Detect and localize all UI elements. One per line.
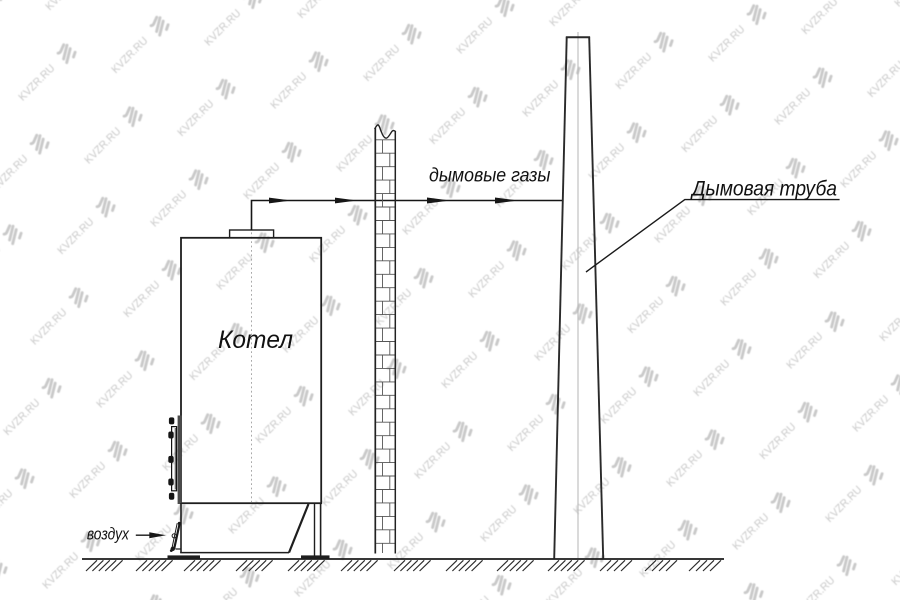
svg-text:KVZR.RU: KVZR.RU	[55, 216, 96, 257]
svg-text:KVZR.RU: KVZR.RU	[199, 586, 240, 600]
svg-text:KVZR.RU: KVZR.RU	[640, 0, 681, 1]
svg-text:KVZR.RU: KVZR.RU	[427, 106, 468, 147]
svg-text:KVZR.RU: KVZR.RU	[865, 59, 900, 100]
svg-text:KVZR.RU: KVZR.RU	[319, 468, 360, 509]
svg-text:KVZR.RU: KVZR.RU	[889, 547, 900, 588]
svg-text:KVZR.RU: KVZR.RU	[544, 566, 585, 600]
svg-text:KVZR.RU: KVZR.RU	[757, 421, 798, 462]
svg-text:KVZR.RU: KVZR.RU	[691, 358, 732, 399]
svg-text:KVZR.RU: KVZR.RU	[268, 70, 309, 111]
svg-text:KVZR.RU: KVZR.RU	[613, 51, 654, 92]
svg-text:KVZR.RU: KVZR.RU	[0, 243, 3, 284]
svg-text:KVZR.RU: KVZR.RU	[532, 322, 573, 363]
svg-text:KVZR.RU: KVZR.RU	[43, 0, 84, 13]
svg-text:KVZR.RU: KVZR.RU	[94, 369, 135, 410]
svg-text:KVZR.RU: KVZR.RU	[679, 114, 720, 155]
svg-text:KVZR.RU: KVZR.RU	[547, 0, 588, 29]
svg-text:KVZR.RU: KVZR.RU	[1, 397, 42, 438]
svg-text:KVZR.RU: KVZR.RU	[361, 43, 402, 84]
svg-text:дымовые газы: дымовые газы	[429, 164, 551, 186]
svg-text:KVZR.RU: KVZR.RU	[0, 487, 15, 528]
svg-text:KVZR.RU: KVZR.RU	[877, 303, 900, 344]
svg-text:KVZR.RU: KVZR.RU	[82, 125, 123, 166]
svg-text:KVZR.RU: KVZR.RU	[520, 78, 561, 119]
svg-text:KVZR.RU: KVZR.RU	[226, 495, 267, 536]
svg-text:KVZR.RU: KVZR.RU	[439, 350, 480, 391]
svg-text:KVZR.RU: KVZR.RU	[307, 224, 348, 265]
svg-text:KVZR.RU: KVZR.RU	[16, 62, 57, 103]
svg-text:KVZR.RU: KVZR.RU	[0, 153, 30, 194]
svg-text:KVZR.RU: KVZR.RU	[292, 558, 333, 599]
svg-text:KVZR.RU: KVZR.RU	[109, 35, 150, 76]
svg-text:KVZR.RU: KVZR.RU	[799, 0, 840, 37]
svg-text:KVZR.RU: KVZR.RU	[412, 440, 453, 481]
svg-text:KVZR.RU: KVZR.RU	[505, 413, 546, 454]
svg-text:KVZR.RU: KVZR.RU	[295, 0, 336, 21]
svg-text:KVZR.RU: KVZR.RU	[718, 267, 759, 308]
svg-text:KVZR.RU: KVZR.RU	[892, 0, 900, 9]
svg-text:KVZR.RU: KVZR.RU	[241, 161, 282, 202]
svg-text:KVZR.RU: KVZR.RU	[373, 287, 414, 328]
svg-text:KVZR.RU: KVZR.RU	[838, 149, 879, 190]
svg-text:Котел: Котел	[218, 326, 293, 354]
svg-text:KVZR.RU: KVZR.RU	[823, 484, 864, 525]
svg-text:KVZR.RU: KVZR.RU	[454, 15, 495, 56]
svg-text:KVZR.RU: KVZR.RU	[850, 393, 891, 434]
svg-text:KVZR.RU: KVZR.RU	[625, 295, 666, 336]
svg-text:KVZR.RU: KVZR.RU	[811, 240, 852, 281]
svg-text:KVZR.RU: KVZR.RU	[598, 385, 639, 426]
svg-text:KVZR.RU: KVZR.RU	[664, 448, 705, 489]
svg-text:KVZR.RU: KVZR.RU	[67, 460, 108, 501]
svg-text:KVZR.RU: KVZR.RU	[466, 259, 507, 300]
svg-text:KVZR.RU: KVZR.RU	[148, 188, 189, 229]
svg-text:KVZR.RU: KVZR.RU	[451, 594, 492, 600]
svg-text:воздух: воздух	[87, 525, 129, 544]
svg-text:KVZR.RU: KVZR.RU	[334, 133, 375, 174]
svg-text:KVZR.RU: KVZR.RU	[253, 405, 294, 446]
svg-text:KVZR.RU: KVZR.RU	[214, 251, 255, 292]
svg-text:Дымовая труба: Дымовая труба	[690, 177, 837, 200]
svg-text:KVZR.RU: KVZR.RU	[28, 306, 69, 347]
svg-text:KVZR.RU: KVZR.RU	[784, 330, 825, 371]
svg-text:KVZR.RU: KVZR.RU	[796, 574, 837, 600]
svg-text:KVZR.RU: KVZR.RU	[730, 511, 771, 552]
svg-text:KVZR.RU: KVZR.RU	[772, 86, 813, 127]
svg-text:KVZR.RU: KVZR.RU	[346, 377, 387, 418]
svg-text:KVZR.RU: KVZR.RU	[706, 23, 747, 64]
svg-text:KVZR.RU: KVZR.RU	[121, 279, 162, 320]
svg-text:KVZR.RU: KVZR.RU	[400, 196, 441, 237]
svg-text:KVZR.RU: KVZR.RU	[40, 550, 81, 591]
svg-text:KVZR.RU: KVZR.RU	[478, 503, 519, 544]
svg-text:KVZR.RU: KVZR.RU	[202, 7, 243, 48]
svg-text:KVZR.RU: KVZR.RU	[175, 98, 216, 139]
svg-text:KVZR.RU: KVZR.RU	[652, 204, 693, 245]
